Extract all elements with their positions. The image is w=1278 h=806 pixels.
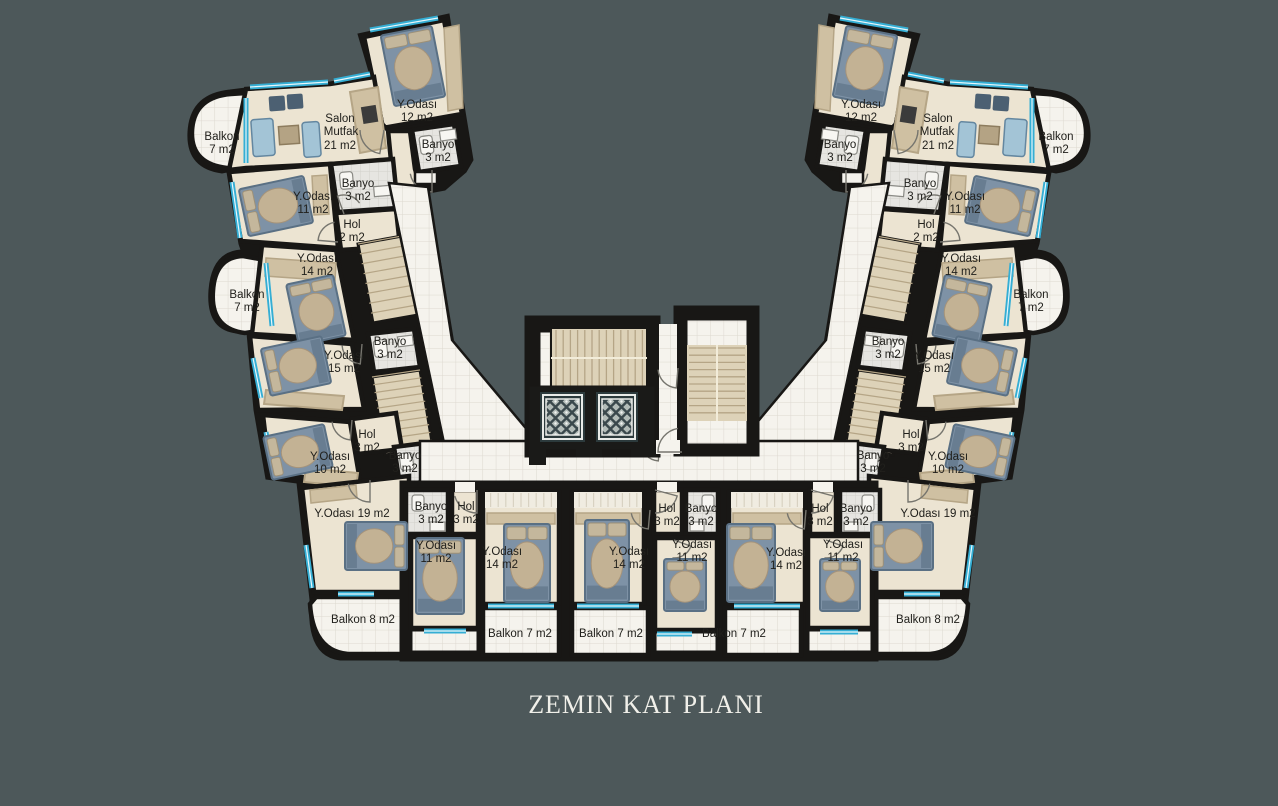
svg-text:Banyo: Banyo — [342, 178, 375, 190]
svg-text:21 m2: 21 m2 — [922, 140, 954, 152]
svg-text:14 m2: 14 m2 — [301, 266, 333, 278]
svg-text:15 m2: 15 m2 — [918, 363, 950, 375]
svg-text:3 m2: 3 m2 — [377, 349, 403, 361]
svg-text:3 m2: 3 m2 — [843, 516, 869, 528]
svg-text:Balkon: Balkon — [1013, 289, 1048, 301]
svg-text:3 m2: 3 m2 — [418, 514, 444, 526]
svg-text:Hol: Hol — [902, 429, 919, 441]
svg-text:14 m2: 14 m2 — [770, 560, 802, 572]
svg-text:10 m2: 10 m2 — [932, 464, 964, 476]
svg-text:3 m2: 3 m2 — [827, 152, 853, 164]
svg-text:Hol: Hol — [358, 429, 375, 441]
svg-text:14 m2: 14 m2 — [945, 266, 977, 278]
svg-text:10 m2: 10 m2 — [314, 464, 346, 476]
svg-text:Banyo: Banyo — [374, 336, 407, 348]
svg-text:Y.Odası 19 m2: Y.Odası 19 m2 — [314, 508, 389, 520]
svg-text:Hol: Hol — [343, 219, 360, 231]
svg-text:Banyo: Banyo — [904, 178, 937, 190]
svg-text:Banyo: Banyo — [415, 501, 448, 513]
svg-text:Banyo: Banyo — [824, 139, 857, 151]
svg-text:Y.Odası: Y.Odası — [766, 547, 806, 559]
svg-text:Y.Odası: Y.Odası — [293, 191, 333, 203]
svg-text:3 m2: 3 m2 — [354, 442, 380, 454]
svg-text:3 m2: 3 m2 — [860, 463, 886, 475]
svg-text:Y.Odası: Y.Odası — [928, 451, 968, 463]
svg-text:7 m2: 7 m2 — [1018, 302, 1044, 314]
svg-text:2 m2: 2 m2 — [913, 232, 939, 244]
svg-text:Balkon: Balkon — [229, 289, 264, 301]
svg-text:7 m2: 7 m2 — [234, 302, 260, 314]
svg-text:Balkon 7 m2: Balkon 7 m2 — [488, 628, 552, 640]
svg-text:3 m2: 3 m2 — [875, 349, 901, 361]
svg-text:Hol: Hol — [917, 219, 934, 231]
svg-text:14 m2: 14 m2 — [613, 559, 645, 571]
svg-text:Hol: Hol — [811, 503, 828, 515]
svg-text:Y.Odası: Y.Odası — [672, 539, 712, 551]
svg-text:Balkon 7 m2: Balkon 7 m2 — [702, 628, 766, 640]
svg-text:14 m2: 14 m2 — [486, 559, 518, 571]
svg-text:Banyo: Banyo — [389, 450, 422, 462]
svg-text:3 m2: 3 m2 — [425, 152, 451, 164]
svg-text:11 m2: 11 m2 — [420, 553, 451, 565]
svg-text:15 m2: 15 m2 — [328, 363, 360, 375]
svg-text:Salon: Salon — [325, 113, 354, 125]
svg-text:11 m2: 11 m2 — [676, 552, 707, 564]
svg-text:Y.Odası: Y.Odası — [823, 539, 863, 551]
svg-text:21 m2: 21 m2 — [324, 140, 356, 152]
svg-text:Y.Odası: Y.Odası — [310, 451, 350, 463]
svg-text:Y.Odası: Y.Odası — [945, 191, 985, 203]
svg-text:Salon: Salon — [923, 113, 952, 125]
svg-text:Y.Odası: Y.Odası — [914, 350, 954, 362]
svg-text:Y.Odası 19 m2: Y.Odası 19 m2 — [900, 508, 975, 520]
svg-text:3 m2: 3 m2 — [345, 191, 371, 203]
svg-text:Mutfak: Mutfak — [324, 126, 359, 138]
svg-text:ZEMIN KAT PLANI: ZEMIN KAT PLANI — [528, 690, 763, 719]
svg-text:Y.Odası: Y.Odası — [482, 546, 522, 558]
svg-text:Y.Odası: Y.Odası — [297, 253, 337, 265]
svg-text:Y.Odası: Y.Odası — [941, 253, 981, 265]
svg-text:2 m2: 2 m2 — [339, 232, 365, 244]
svg-text:Hol: Hol — [457, 501, 474, 513]
svg-text:3 m2: 3 m2 — [807, 516, 833, 528]
svg-text:Y.Odası: Y.Odası — [841, 99, 881, 111]
svg-text:3 m2: 3 m2 — [654, 516, 680, 528]
svg-text:Balkon: Balkon — [1038, 131, 1073, 143]
svg-text:12 m2: 12 m2 — [401, 112, 433, 124]
svg-text:3 m2: 3 m2 — [907, 191, 933, 203]
svg-text:Y.Odası: Y.Odası — [324, 350, 364, 362]
svg-text:3 m2: 3 m2 — [392, 463, 418, 475]
svg-text:Banyo: Banyo — [857, 450, 890, 462]
svg-text:11 m2: 11 m2 — [297, 204, 328, 216]
svg-text:7 m2: 7 m2 — [209, 144, 235, 156]
svg-text:Balkon: Balkon — [204, 131, 239, 143]
svg-text:Y.Odası: Y.Odası — [397, 99, 437, 111]
svg-text:Balkon 8 m2: Balkon 8 m2 — [896, 614, 960, 626]
svg-text:11 m2: 11 m2 — [827, 552, 858, 564]
svg-text:Hol: Hol — [658, 503, 675, 515]
svg-text:3 m2: 3 m2 — [688, 516, 714, 528]
svg-text:Y.Odası: Y.Odası — [609, 546, 649, 558]
svg-text:Banyo: Banyo — [422, 139, 455, 151]
svg-text:Balkon 7 m2: Balkon 7 m2 — [579, 628, 643, 640]
svg-text:Mutfak: Mutfak — [920, 126, 955, 138]
svg-text:3 m2: 3 m2 — [453, 514, 479, 526]
svg-text:12 m2: 12 m2 — [845, 112, 877, 124]
svg-text:7 m2: 7 m2 — [1043, 144, 1069, 156]
svg-text:11 m2: 11 m2 — [949, 204, 980, 216]
svg-text:3 m2: 3 m2 — [898, 442, 924, 454]
svg-text:Banyo: Banyo — [685, 503, 718, 515]
svg-text:Y.Odası: Y.Odası — [416, 540, 456, 552]
svg-text:Banyo: Banyo — [840, 503, 873, 515]
svg-text:Banyo: Banyo — [872, 336, 905, 348]
svg-text:Balkon 8 m2: Balkon 8 m2 — [331, 614, 395, 626]
